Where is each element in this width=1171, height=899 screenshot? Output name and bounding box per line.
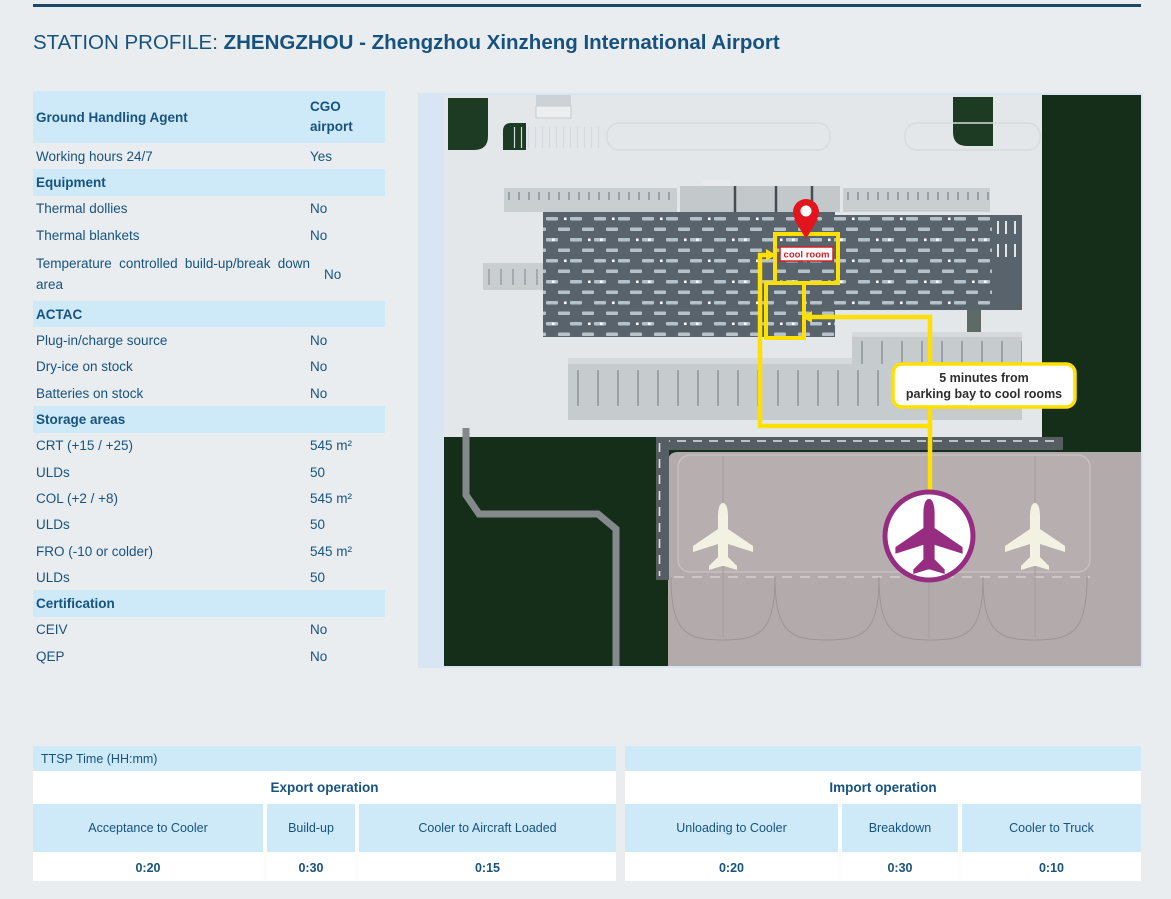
table-row: Thermal blanketsNo — [33, 222, 385, 248]
row-value: No — [310, 386, 385, 401]
import-operation-title: Import operation — [829, 780, 936, 795]
row-label: COL (+2 / +8) — [33, 491, 310, 506]
page-title-prefix: STATION PROFILE: — [33, 31, 224, 54]
ttsp-value-cell: 0:30 — [842, 855, 958, 881]
row-label: Batteries on stock — [33, 386, 310, 401]
ttsp-import-table: Import operation Unloading to CoolerBrea… — [625, 746, 1141, 881]
callout-line1: 5 minutes from — [939, 371, 1029, 385]
row-value: 545 m² — [310, 438, 385, 453]
dock-strip-left-ticks — [504, 188, 677, 212]
row-label: Thermal blankets — [33, 228, 310, 243]
row-label: ULDs — [33, 570, 310, 585]
row-label: Storage areas — [33, 412, 310, 427]
side-dock-ticks — [483, 263, 543, 290]
ttsp-column-header: Breakdown — [842, 804, 958, 852]
header-label: Ground Handling Agent — [33, 110, 310, 125]
ttsp-value-cell: 0:15 — [359, 855, 616, 881]
row-value: 50 — [310, 465, 385, 480]
table-body: Working hours 24/7YesEquipmentThermal do… — [33, 143, 385, 669]
airport-map: cool room 5 minutes from parking bay to … — [418, 93, 1143, 668]
export-operation-row: Export operation — [33, 774, 616, 801]
ttsp-value-cell: 0:20 — [33, 855, 263, 881]
export-value-row: 0:200:300:15 — [33, 855, 616, 881]
table-row: Thermal dolliesNo — [33, 196, 385, 222]
page-title: STATION PROFILE: ZHENGZHOU - Zhengzhou X… — [33, 31, 780, 55]
row-value: No — [310, 201, 385, 216]
table-row: Temperature controlled build-up/break do… — [33, 248, 385, 301]
section-header-row: Storage areas — [33, 406, 385, 432]
table-row: Plug-in/charge sourceNo — [33, 327, 385, 353]
row-label: Temperature controlled build-up/break do… — [33, 254, 324, 295]
top-rule — [33, 4, 1141, 7]
ttsp-column-header: Build-up — [267, 804, 355, 852]
ttsp-export-table: TTSP Time (HH:mm) Export operation Accep… — [33, 746, 616, 881]
row-label: ULDs — [33, 517, 310, 532]
parking-ticks-area — [511, 125, 605, 150]
table-header-row: Ground Handling Agent CGO airport — [33, 91, 385, 143]
row-label: CRT (+15 / +25) — [33, 438, 310, 453]
row-label: Thermal dollies — [33, 201, 310, 216]
row-label: ACTAC — [33, 307, 310, 322]
ttsp-title: TTSP Time (HH:mm) — [41, 752, 157, 766]
dock-strip-right-ticks — [843, 188, 990, 212]
ttsp-value-cell: 0:20 — [625, 855, 838, 881]
warehouse-left — [543, 212, 835, 337]
table-row: CRT (+15 / +25)545 m² — [33, 433, 385, 459]
airport-map-illustration: cool room 5 minutes from parking bay to … — [418, 93, 1143, 668]
ttsp-spacer-row — [625, 746, 1141, 771]
taxiway-horizontal — [656, 437, 1063, 450]
table-row: Working hours 24/7Yes — [33, 143, 385, 169]
row-value: No — [310, 622, 385, 637]
table-row: ULDs50 — [33, 564, 385, 590]
ttsp-column-header: Acceptance to Cooler — [33, 804, 263, 852]
row-value: 50 — [310, 517, 385, 532]
import-operation-row: Import operation — [625, 774, 1141, 801]
ttsp-column-header: Cooler to Aircraft Loaded — [359, 804, 616, 852]
row-value: No — [324, 267, 385, 282]
warehouse-connector — [967, 310, 981, 332]
row-value: Yes — [310, 149, 385, 164]
row-label: QEP — [33, 649, 310, 664]
ttsp-value-cell: 0:10 — [962, 855, 1141, 881]
row-label: Dry-ice on stock — [33, 359, 310, 374]
row-value: 545 m² — [310, 544, 385, 559]
table-row: QEPNo — [33, 643, 385, 669]
callout-line2: parking bay to cool rooms — [906, 387, 1062, 401]
travel-time-callout: 5 minutes from parking bay to cool rooms — [893, 364, 1075, 407]
cool-room-label: cool room — [784, 250, 830, 261]
header-value: CGO airport — [310, 97, 385, 137]
table-row: FRO (-10 or colder)545 m² — [33, 538, 385, 564]
row-value: No — [310, 333, 385, 348]
small-building-lower — [536, 106, 571, 118]
row-label: CEIV — [33, 622, 310, 637]
row-label: Plug-in/charge source — [33, 333, 310, 348]
row-label: Working hours 24/7 — [33, 149, 310, 164]
section-header-row: Certification — [33, 590, 385, 616]
page-title-airport: ZHENGZHOU - Zhengzhou Xinzheng Internati… — [224, 31, 780, 54]
row-value: 545 m² — [310, 491, 385, 506]
parking-stands-area — [678, 455, 1090, 572]
row-label: ULDs — [33, 465, 310, 480]
section-header-row: ACTAC — [33, 301, 385, 327]
import-header-row: Unloading to CoolerBreakdownCooler to Tr… — [625, 804, 1141, 852]
ttsp-value-cell: 0:30 — [267, 855, 355, 881]
import-value-row: 0:200:300:10 — [625, 855, 1141, 881]
row-value: No — [310, 649, 385, 664]
warehouse-right — [835, 215, 992, 310]
table-row: CEIVNo — [33, 617, 385, 643]
taxiway-vertical — [656, 437, 669, 580]
ttsp-title-row: TTSP Time (HH:mm) — [33, 746, 616, 771]
row-label: Equipment — [33, 175, 310, 190]
row-label: FRO (-10 or colder) — [33, 544, 310, 559]
table-row: ULDs50 — [33, 459, 385, 485]
table-row: Dry-ice on stockNo — [33, 354, 385, 380]
row-value: No — [310, 228, 385, 243]
table-row: Batteries on stockNo — [33, 380, 385, 406]
section-header-row: Equipment — [33, 169, 385, 195]
ttsp-column-header: Unloading to Cooler — [625, 804, 838, 852]
row-value: 50 — [310, 570, 385, 585]
table-row: COL (+2 / +8)545 m² — [33, 485, 385, 511]
export-header-row: Acceptance to CoolerBuild-upCooler to Ai… — [33, 804, 616, 852]
export-operation-title: Export operation — [270, 780, 378, 795]
ttsp-column-header: Cooler to Truck — [962, 804, 1141, 852]
station-info-table: Ground Handling Agent CGO airport Workin… — [33, 91, 385, 669]
table-row: ULDs50 — [33, 512, 385, 538]
row-label: Certification — [33, 596, 310, 611]
small-building — [536, 95, 571, 106]
row-value: No — [310, 359, 385, 374]
